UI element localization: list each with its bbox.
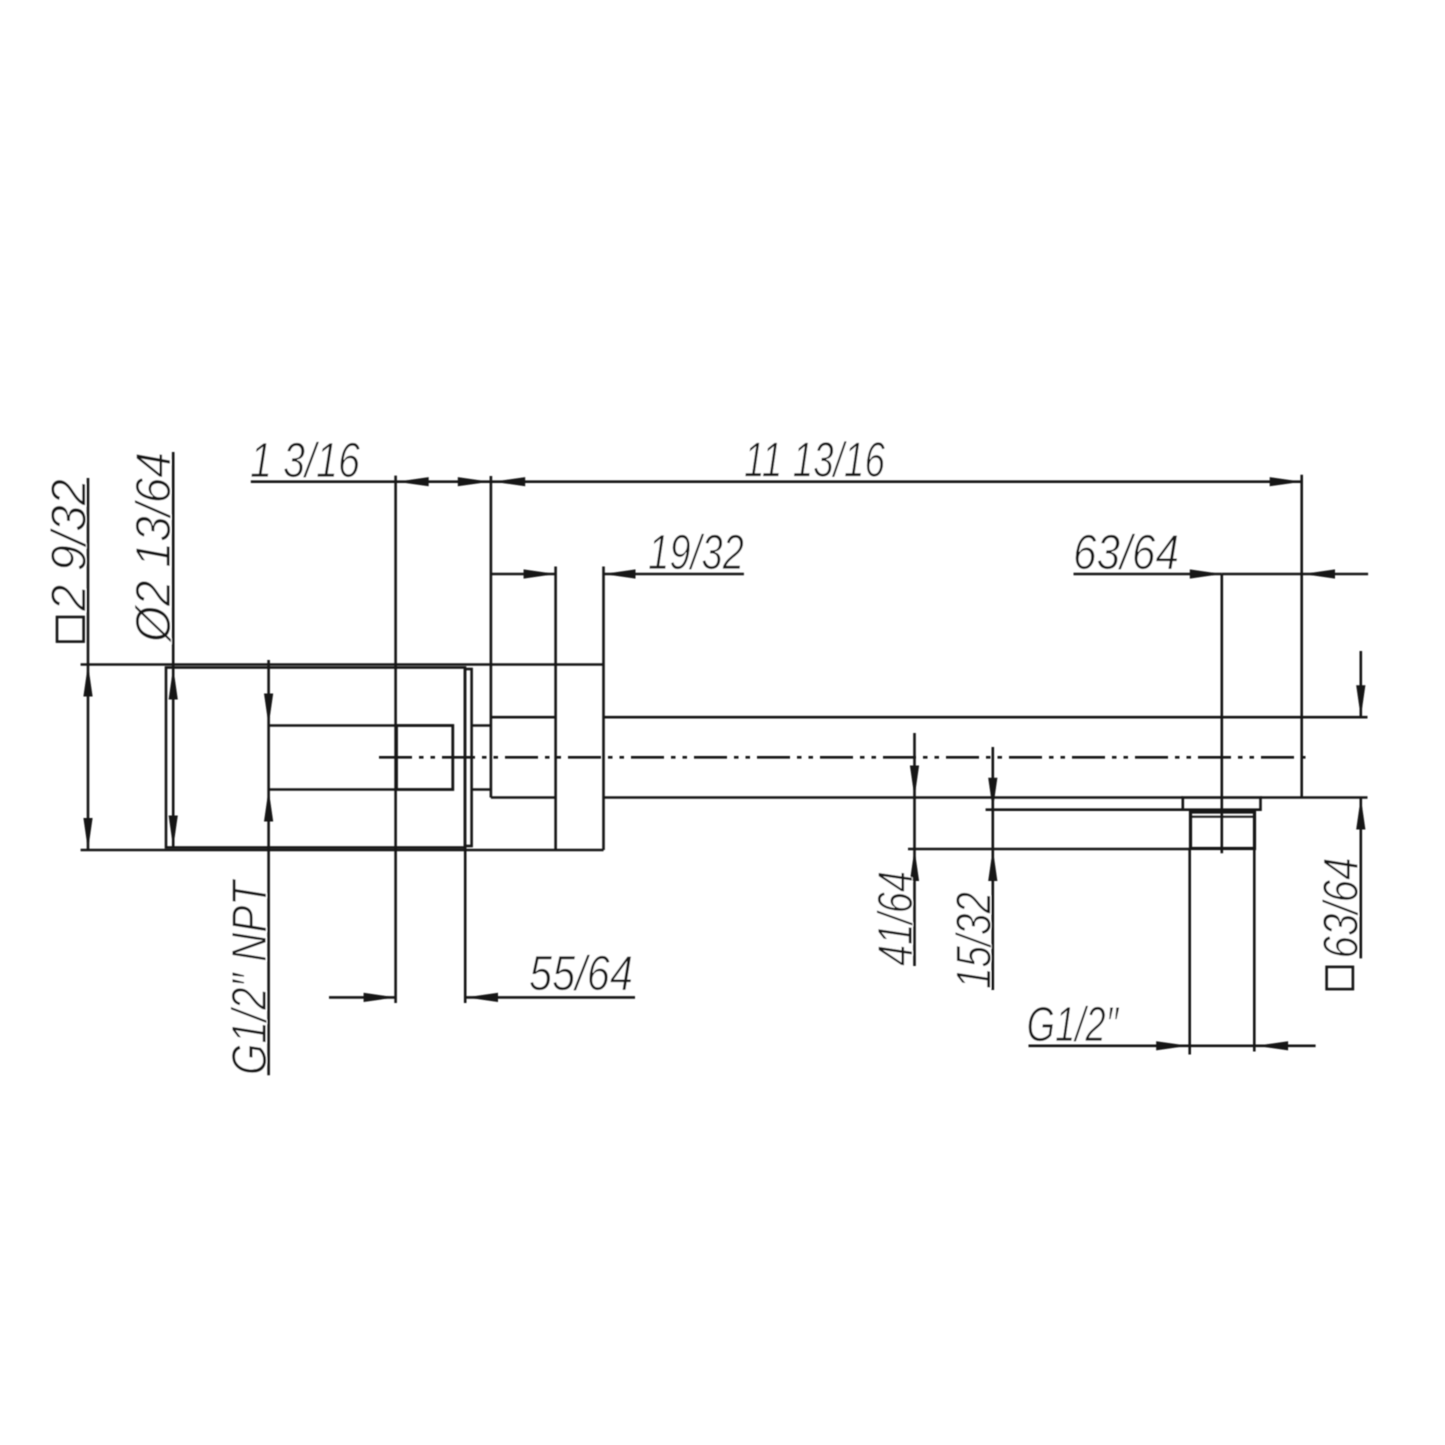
svg-text:11 13/16: 11 13/16: [744, 434, 886, 488]
svg-text:2 9/32: 2 9/32: [43, 479, 97, 612]
svg-text:G1/2″ NPT: G1/2″ NPT: [223, 878, 277, 1075]
svg-text:55/64: 55/64: [529, 947, 633, 1001]
svg-text:63/64: 63/64: [1073, 526, 1179, 580]
svg-text:1 3/16: 1 3/16: [250, 434, 361, 488]
svg-text:G1/2″: G1/2″: [1027, 998, 1120, 1052]
svg-text:Ø2 13/64: Ø2 13/64: [127, 452, 181, 644]
svg-text:19/32: 19/32: [648, 526, 744, 580]
svg-text:41/64: 41/64: [869, 871, 923, 966]
svg-text:63/64: 63/64: [1315, 858, 1369, 959]
svg-text:15/32: 15/32: [948, 892, 1002, 989]
